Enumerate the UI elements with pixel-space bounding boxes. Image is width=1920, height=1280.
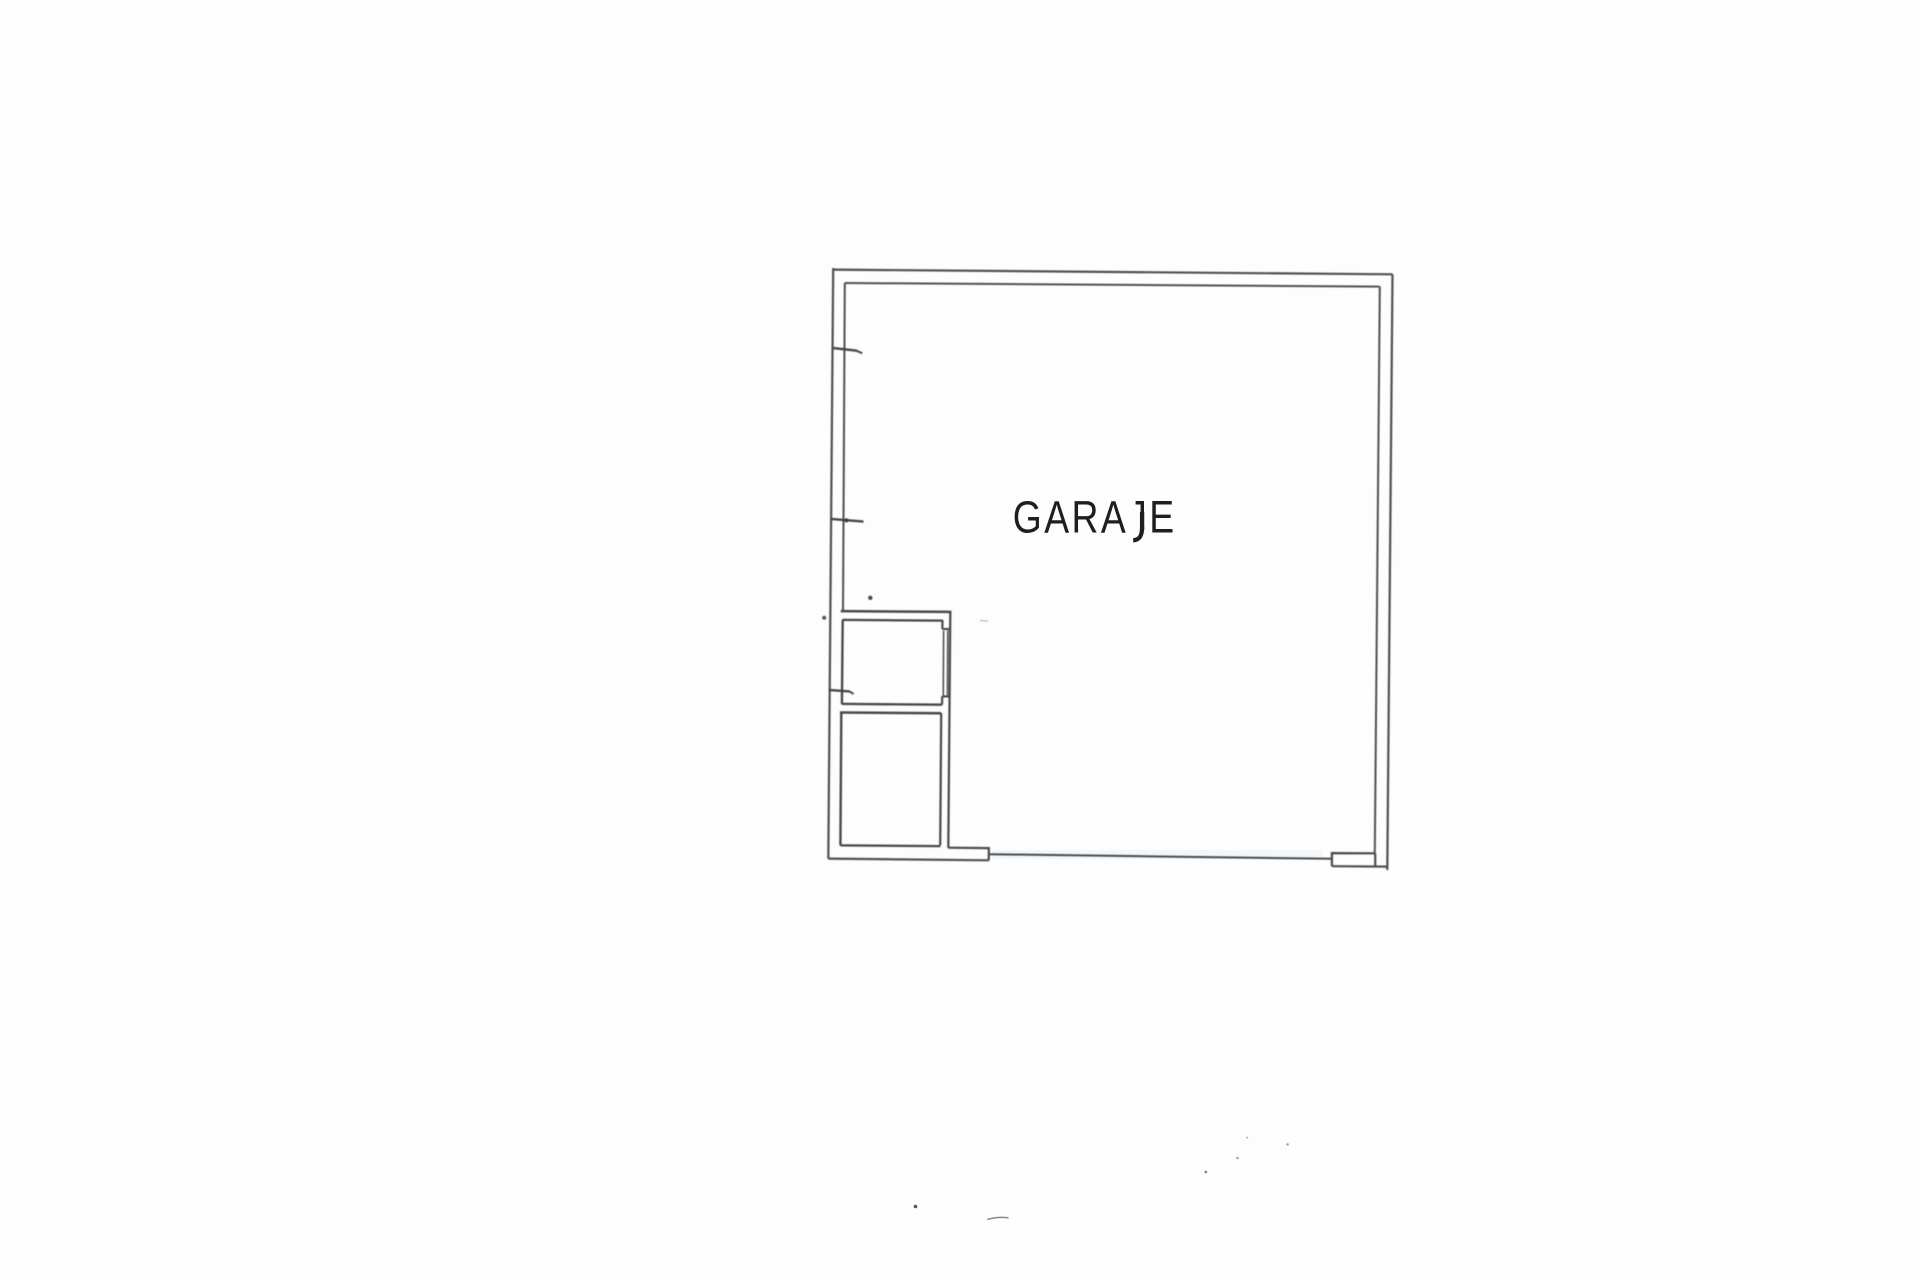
svg-text:GARAJE: GARAJE xyxy=(1013,491,1177,542)
